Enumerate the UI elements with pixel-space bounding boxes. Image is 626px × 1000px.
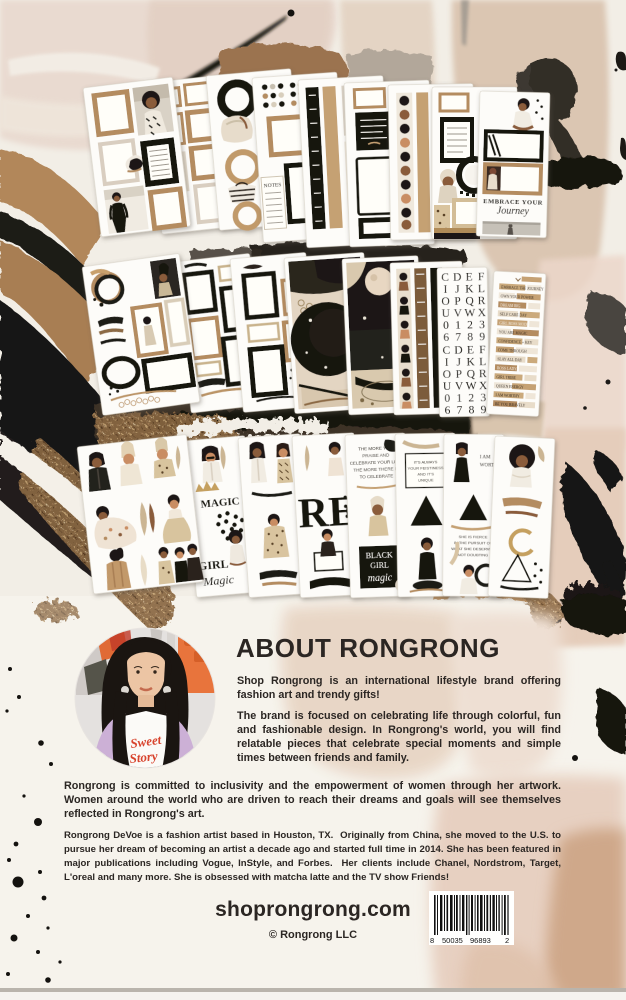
svg-text:GIRL: GIRL [197, 557, 229, 574]
svg-text:0: 0 [443, 320, 449, 332]
svg-text:W: W [464, 307, 475, 319]
svg-text:UNIQUE: UNIQUE [418, 477, 434, 482]
svg-text:8: 8 [469, 404, 475, 416]
svg-text:F: F [478, 271, 485, 283]
svg-text:Q: Q [467, 368, 476, 380]
svg-text:3: 3 [479, 319, 485, 331]
svg-text:J: J [455, 284, 460, 296]
svg-text:PRAISE AND: PRAISE AND [362, 452, 390, 458]
svg-text:0: 0 [444, 393, 450, 405]
svg-text:NOTES: NOTES [264, 182, 282, 189]
svg-text:U: U [443, 381, 452, 393]
svg-text:C: C [443, 345, 451, 357]
svg-text:2: 2 [468, 392, 474, 404]
svg-text:O: O [441, 296, 450, 308]
svg-text:L: L [478, 283, 485, 295]
svg-text:9: 9 [481, 404, 487, 416]
svg-text:O: O [443, 369, 452, 381]
svg-text:Journey: Journey [497, 205, 530, 217]
svg-text:SHE IS FIERCE: SHE IS FIERCE [459, 534, 488, 539]
svg-text:9: 9 [479, 331, 485, 343]
svg-text:7: 7 [455, 332, 461, 344]
svg-text:X: X [479, 380, 488, 392]
svg-text:R: R [478, 295, 486, 307]
svg-text:X: X [478, 307, 487, 319]
svg-text:YOUR FEISTINESS: YOUR FEISTINESS [408, 465, 444, 471]
svg-text:E: E [467, 344, 474, 356]
svg-text:D: D [453, 272, 462, 284]
svg-text:V: V [455, 381, 464, 393]
svg-text:2: 2 [467, 319, 473, 331]
svg-text:D: D [454, 345, 463, 357]
svg-text:K: K [466, 356, 475, 368]
svg-text:V: V [454, 308, 463, 320]
svg-text:6: 6 [443, 332, 449, 344]
svg-text:7: 7 [457, 405, 463, 417]
svg-text:IN THE PURSUIT OF: IN THE PURSUIT OF [454, 540, 493, 545]
svg-text:1: 1 [456, 393, 462, 405]
svg-text:Magic: Magic [202, 572, 235, 589]
svg-text:P: P [456, 369, 463, 381]
svg-text:NOT DOUBTING: NOT DOUBTING [458, 552, 489, 557]
svg-text:AND IT'S: AND IT'S [417, 471, 434, 476]
svg-text:C: C [441, 272, 449, 284]
svg-text:R: R [479, 368, 487, 380]
svg-text:I AM: I AM [480, 455, 491, 460]
svg-text:magic: magic [368, 572, 393, 584]
svg-text:I: I [445, 357, 449, 369]
svg-text:BLACK: BLACK [366, 550, 394, 560]
svg-text:J: J [456, 357, 461, 369]
svg-text:I: I [443, 284, 447, 296]
svg-text:GIRL: GIRL [370, 561, 389, 571]
svg-text:L: L [479, 356, 486, 368]
svg-text:E: E [466, 271, 473, 283]
svg-text:Story: Story [129, 748, 159, 766]
svg-text:W: W [466, 380, 477, 392]
svg-text:6: 6 [445, 405, 451, 417]
svg-text:F: F [479, 344, 486, 356]
svg-text:1: 1 [455, 320, 461, 332]
svg-text:8: 8 [467, 331, 473, 343]
svg-text:K: K [465, 283, 474, 295]
svg-text:U: U [442, 308, 451, 320]
svg-text:Q: Q [465, 295, 474, 307]
svg-text:P: P [454, 296, 461, 308]
svg-text:IT'S ALWAYS: IT'S ALWAYS [414, 459, 438, 464]
svg-text:3: 3 [480, 392, 486, 404]
